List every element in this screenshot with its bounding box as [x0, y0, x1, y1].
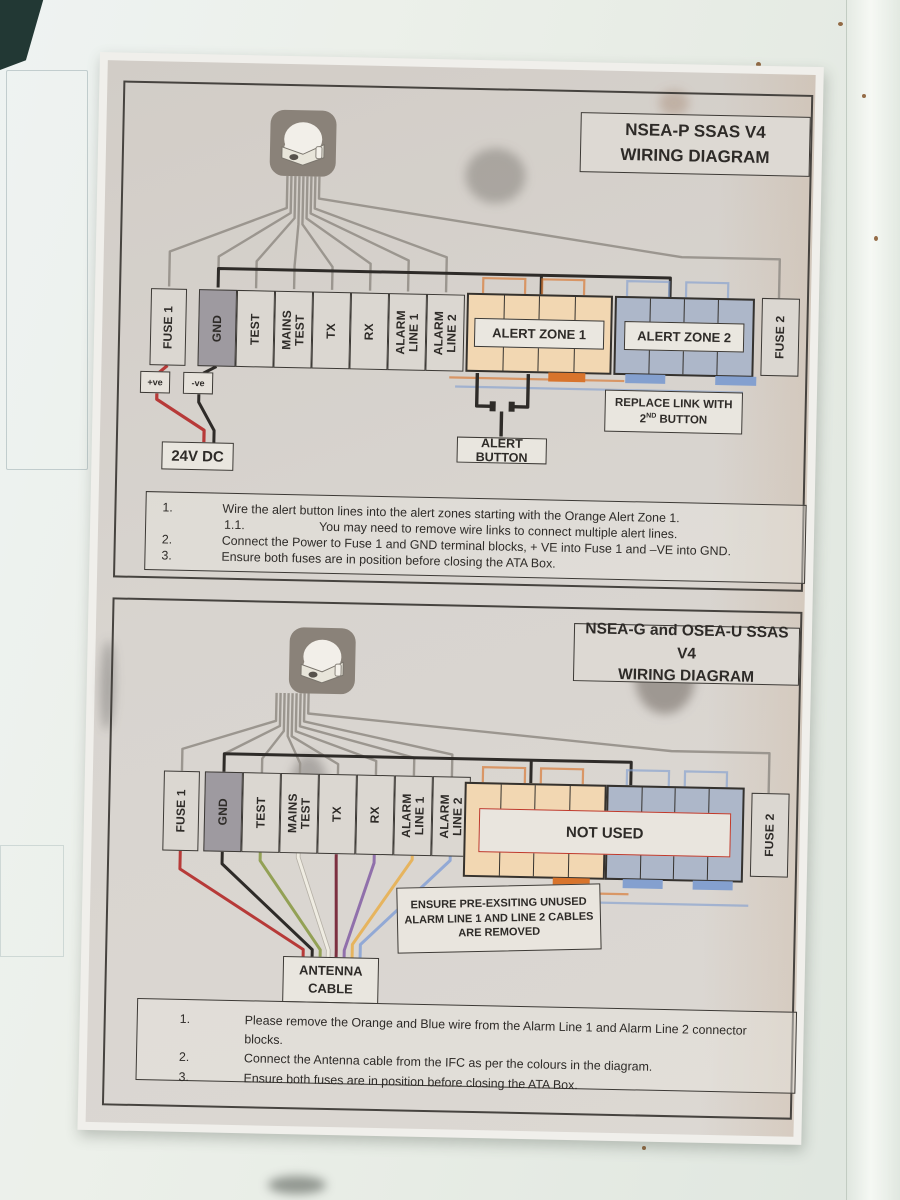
title-line-2: WIRING DIAGRAM [618, 664, 754, 689]
rust-speck [838, 22, 843, 26]
title-line-1: NSEA-P SSAS V4 [625, 118, 766, 146]
link-tab-blue [625, 374, 665, 384]
terminal-test: TEST [235, 290, 275, 368]
rust-speck [642, 1146, 646, 1150]
step-number: 2. [162, 532, 222, 549]
terminal-fuse2: FUSE 2 [750, 793, 790, 878]
antenna-cable-label: ANTENNA CABLE [282, 956, 379, 1004]
step-number: 2. [179, 1048, 244, 1069]
link-tab-blue [715, 376, 756, 386]
step-number: 3. [161, 548, 221, 565]
wall-smudge [268, 1176, 326, 1194]
terminal-mains-test: MAINS TEST [273, 291, 313, 369]
title-line-1: NSEA-G and OSEA-U SSAS V4 [574, 618, 799, 668]
antenna-unit-icon [269, 110, 336, 177]
step-number: 1. [162, 499, 222, 516]
pos-terminal-label: +ve [140, 371, 170, 394]
diagram-nsea-p: NSEA-P SSAS V4 WIRING DIAGRAM FUSE 1 GND… [113, 80, 813, 591]
antenna-unit-icon [289, 627, 356, 694]
link-tab-blue [693, 881, 733, 891]
not-used-label: NOT USED [478, 808, 731, 857]
terminal-fuse2: FUSE 2 [760, 298, 800, 377]
step-number: 1.1. [224, 517, 319, 535]
title-box-2: NSEA-G and OSEA-U SSAS V4 WIRING DIAGRAM [573, 623, 800, 686]
neg-terminal-label: -ve [183, 372, 213, 395]
step-number: 3. [178, 1068, 243, 1089]
pre-existing-cables-note: ENSURE PRE-EXSITING UNUSED ALARM LINE 1 … [396, 883, 601, 953]
terminal-rx: RX [349, 292, 389, 370]
paper: NSEA-P SSAS V4 WIRING DIAGRAM FUSE 1 GND… [86, 60, 816, 1137]
link-tab-orange [548, 372, 585, 382]
alert-zone-1-label: ALERT ZONE 1 [474, 318, 605, 350]
terminal-mains-test: MAINS TEST [279, 773, 319, 854]
instructions-box-2: 1.Please remove the Orange and Blue wire… [135, 998, 797, 1094]
terminal-tx: TX [317, 774, 357, 855]
photo-of-wiring-diagrams: { "colors":{ "zone1_orange":"#f2d7b2","z… [0, 0, 900, 1200]
title-line-2: WIRING DIAGRAM [620, 143, 770, 171]
terminal-alarm-line2: ALARM LINE 2 [425, 294, 465, 372]
laminated-sheet: NSEA-P SSAS V4 WIRING DIAGRAM FUSE 1 GND… [77, 52, 823, 1145]
terminal-alarm-line1: ALARM LINE 1 [393, 775, 433, 856]
terminal-test: TEST [241, 772, 281, 853]
terminal-tx: TX [311, 292, 351, 370]
antenna-wires [169, 174, 781, 300]
antenna-unit-glyph [289, 627, 356, 694]
step-number: 1. [179, 1010, 245, 1050]
antenna-unit-glyph [269, 110, 336, 177]
wall-corner-shadow [0, 0, 72, 70]
terminal-fuse1: FUSE 1 [149, 288, 187, 366]
power-supply-label: 24V DC [161, 441, 234, 471]
terminal-rx: RX [355, 775, 395, 856]
wall-faint-frame-2 [0, 845, 64, 957]
terminal-alarm-line1: ALARM LINE 1 [387, 293, 427, 371]
rust-speck [874, 236, 878, 241]
replace-link-note: REPLACE LINK WITH 2ND BUTTON [604, 390, 743, 435]
alert-button-label: ALERT BUTTON [456, 437, 547, 465]
link-tab-blue [623, 879, 663, 889]
terminal-gnd: GND [197, 289, 237, 367]
wall-right-highlight [846, 0, 900, 1200]
alert-zone-2-label: ALERT ZONE 2 [624, 321, 745, 353]
terminal-fuse1: FUSE 1 [162, 770, 200, 851]
diagram-nsea-g-osea-u: NSEA-G and OSEA-U SSAS V4 WIRING DIAGRAM… [102, 597, 802, 1119]
alert-button-wires [476, 373, 528, 437]
wall-faint-frame [6, 70, 88, 470]
terminal-gnd: GND [203, 771, 243, 852]
title-box-1: NSEA-P SSAS V4 WIRING DIAGRAM [580, 112, 811, 177]
rust-speck [862, 94, 866, 98]
instructions-box-1: 1.Wire the alert button lines into the a… [144, 491, 807, 584]
